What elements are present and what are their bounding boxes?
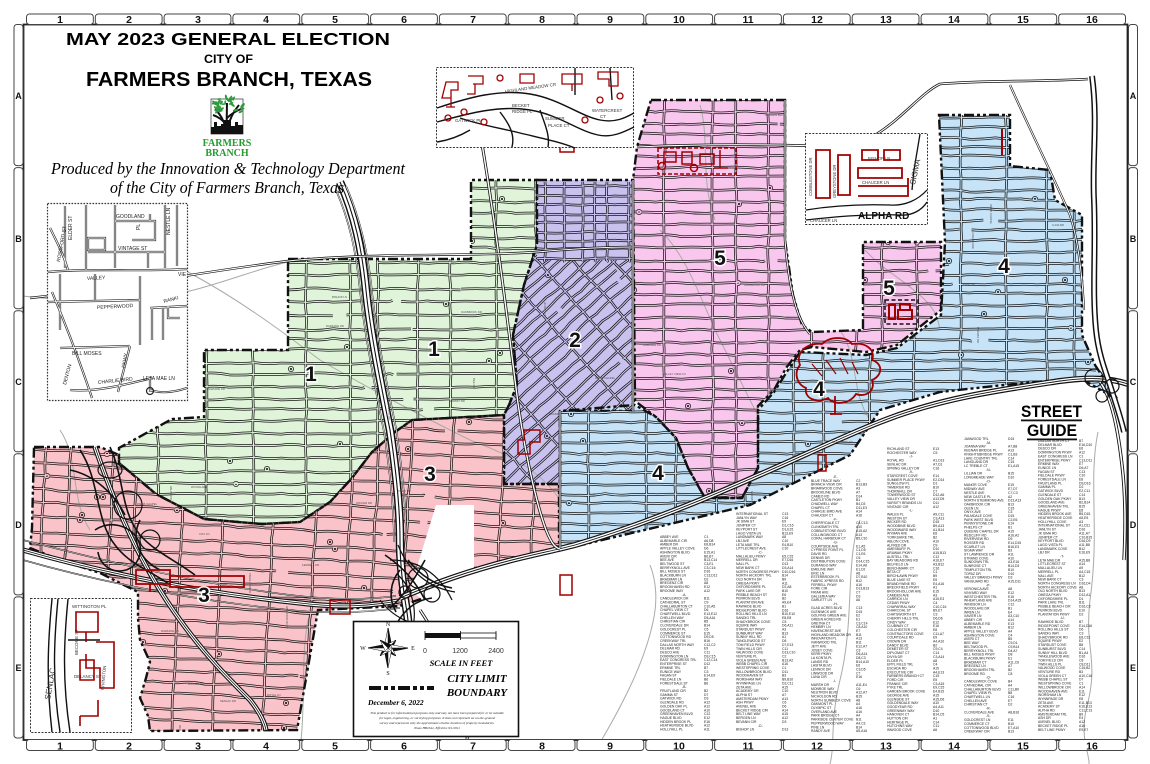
svg-text:COX LN: COX LN [199, 532, 209, 536]
svg-text:12: 12 [811, 741, 823, 753]
svg-text:S: S [386, 671, 389, 677]
svg-text:VALLEY: VALLEY [87, 275, 106, 282]
svg-text:SCALE IN FEET: SCALE IN FEET [430, 658, 494, 668]
svg-text:SENLAC DR: SENLAC DR [220, 699, 236, 703]
svg-text:RAWHIDE DR: RAWHIDE DR [207, 387, 225, 391]
svg-text:16: 16 [1086, 14, 1098, 26]
svg-text:A15,D11: A15,D11 [1008, 580, 1021, 584]
svg-text:8: 8 [539, 741, 545, 753]
svg-text:5: 5 [714, 247, 726, 270]
svg-text:-N-: -N- [986, 468, 991, 472]
svg-text:C8: C8 [1008, 672, 1012, 676]
svg-text:JOSEY LN: JOSEY LN [543, 302, 547, 315]
svg-text:DELANCY ST: DELANCY ST [74, 674, 102, 679]
svg-text:SENLAC DR: SENLAC DR [64, 541, 68, 557]
svg-text:A12: A12 [704, 589, 710, 593]
svg-text:15: 15 [1017, 14, 1029, 26]
svg-text:10: 10 [673, 14, 685, 26]
svg-text:8: 8 [539, 14, 545, 26]
svg-text:RANDY AVE: RANDY AVE [811, 729, 831, 733]
svg-text:2: 2 [126, 741, 132, 753]
svg-text:A6: A6 [856, 598, 860, 602]
svg-text:CORAL HARBOUR CT: CORAL HARBOUR CT [811, 537, 846, 541]
svg-text:MAY 2023 GENERAL ELECTION: MAY 2023 GENERAL ELECTION [66, 29, 390, 49]
svg-text:MIDWAY RD: MIDWAY RD [449, 399, 465, 403]
svg-text:This product is for informatio: This product is for informational purpos… [370, 711, 504, 715]
svg-text:BISHOP LN: BISHOP LN [868, 156, 890, 161]
svg-text:Produced by the Innovation & T: Produced by the Innovation & Technology … [50, 159, 406, 178]
svg-text:D2: D2 [1008, 703, 1012, 707]
svg-text:CT: CT [600, 114, 606, 119]
svg-text:D10: D10 [1008, 476, 1014, 480]
svg-text:-M-: -M- [986, 441, 991, 445]
svg-text:W: W [360, 646, 366, 652]
svg-text:CITY LIMIT: CITY LIMIT [447, 673, 507, 685]
svg-text:SPRING VALLEY DR: SPRING VALLEY DR [887, 466, 920, 470]
svg-text:E9,E7: E9,E7 [1079, 728, 1088, 732]
svg-text:B5,C10: B5,C10 [856, 537, 867, 541]
svg-text:BROOME RD: BROOME RD [964, 672, 985, 676]
svg-text:FARMERS BRANCH, TEXAS: FARMERS BRANCH, TEXAS [86, 69, 372, 91]
svg-text:GOODLAND: GOODLAND [116, 214, 145, 220]
svg-text:GUIDE: GUIDE [1027, 421, 1077, 440]
svg-text:JOSEY LN: JOSEY LN [397, 489, 410, 493]
svg-text:C: C [1130, 377, 1137, 387]
svg-text:-T-: -T- [1060, 555, 1064, 559]
svg-text:1: 1 [305, 363, 317, 386]
svg-text:GARDEN BROOK: GARDEN BROOK [765, 113, 788, 117]
svg-text:BRANCH: BRANCH [205, 148, 249, 159]
svg-text:4: 4 [813, 378, 825, 401]
svg-text:WITTINGTON PL: WITTINGTON PL [72, 604, 107, 609]
svg-text:E1,A15: E1,A15 [1008, 464, 1019, 468]
svg-text:INWOOD COVE: INWOOD COVE [887, 728, 913, 732]
svg-text:D13: D13 [782, 728, 788, 732]
svg-text:WEBB CHAPEL: WEBB CHAPEL [137, 502, 158, 506]
svg-text:E: E [411, 646, 415, 652]
svg-text:D: D [1130, 520, 1137, 530]
svg-text:12: 12 [811, 14, 823, 26]
svg-text:OAKBROOK DR: OAKBROOK DR [744, 283, 765, 287]
svg-text:BELT LINE PKWY: BELT LINE PKWY [1038, 728, 1066, 732]
svg-text:7: 7 [470, 741, 476, 753]
svg-text:WOODLAKE: WOODLAKE [191, 485, 207, 489]
svg-text:4: 4 [263, 741, 269, 753]
svg-text:STREET: STREET [1021, 402, 1083, 421]
svg-text:A6: A6 [933, 728, 937, 732]
svg-text:BEVANN CIR: BEVANN CIR [736, 720, 757, 724]
svg-text:BOUNDARY: BOUNDARY [446, 687, 509, 699]
svg-text:WEBB CHAPEL: WEBB CHAPEL [595, 376, 616, 380]
svg-text:B6: B6 [704, 681, 708, 685]
svg-text:C10: C10 [782, 547, 788, 551]
svg-text:A: A [15, 91, 22, 101]
svg-text:VIE: VIE [178, 272, 187, 278]
svg-text:LUNA CIR: LUNA CIR [811, 675, 827, 679]
svg-text:OAKBROOK DR: OAKBROOK DR [461, 310, 482, 314]
svg-text:E16: E16 [856, 675, 862, 679]
svg-text:6: 6 [401, 14, 407, 26]
svg-text:9: 9 [607, 14, 613, 26]
svg-text:RAWHIDE DR: RAWHIDE DR [161, 629, 179, 633]
svg-text:1200: 1200 [452, 648, 468, 655]
svg-text:-J-: -J- [909, 455, 913, 459]
svg-text:VALLEY VIEW LN: VALLEY VIEW LN [663, 372, 686, 376]
svg-text:ALPHA RD: ALPHA RD [858, 211, 909, 222]
svg-text:PL: PL [136, 224, 142, 230]
svg-text:MIDWAY RD: MIDWAY RD [976, 327, 980, 343]
svg-text:December 6, 2022: December 6, 2022 [367, 698, 424, 707]
svg-text:BECKET: BECKET [512, 103, 530, 108]
svg-text:D2: D2 [1079, 612, 1083, 616]
svg-text:6: 6 [401, 741, 407, 753]
svg-text:N: N [386, 622, 391, 628]
svg-text:14: 14 [948, 741, 960, 753]
svg-text:D15: D15 [1008, 437, 1014, 441]
svg-text:A12: A12 [933, 505, 939, 509]
svg-text:PLANTATION PKWY: PLANTATION PKWY [1038, 612, 1070, 616]
svg-text:5: 5 [332, 14, 338, 26]
svg-text:10: 10 [673, 741, 685, 753]
svg-text:3: 3 [195, 741, 201, 753]
svg-text:LETA MAE LN: LETA MAE LN [143, 376, 175, 382]
svg-text:VINTAGE ST: VINTAGE ST [118, 246, 147, 252]
svg-text:1: 1 [57, 14, 63, 26]
svg-text:ROYAL LN: ROYAL LN [267, 693, 281, 697]
svg-text:A5,A16: A5,A16 [856, 729, 867, 733]
svg-text:CITY OF: CITY OF [204, 54, 253, 66]
svg-text:E: E [1130, 663, 1136, 673]
svg-text:2400: 2400 [488, 648, 504, 655]
svg-text:11: 11 [742, 14, 753, 26]
svg-text:4: 4 [263, 14, 269, 26]
svg-text:HOLLYHILL PL: HOLLYHILL PL [660, 728, 683, 732]
svg-text:4: 4 [998, 255, 1010, 278]
svg-text:OAKBROOK DR: OAKBROOK DR [832, 440, 853, 444]
svg-text:PLACE CT: PLACE CT [548, 123, 570, 128]
svg-text:2: 2 [126, 14, 132, 26]
svg-text:C16: C16 [933, 466, 939, 470]
svg-text:OLD NORTH RD: OLD NORTH RD [387, 399, 391, 420]
svg-text:A16: A16 [856, 514, 862, 518]
svg-text:CREEKWAY CIR: CREEKWAY CIR [964, 730, 990, 734]
svg-text:TANGLEWOOD: TANGLEWOOD [248, 573, 252, 593]
svg-text:FYKE RD: FYKE RD [963, 283, 975, 287]
svg-text:11: 11 [742, 741, 753, 753]
svg-text:9: 9 [607, 741, 613, 753]
svg-text:GATWICK PL: GATWICK PL [455, 118, 482, 123]
svg-text:WEBB CHAPEL: WEBB CHAPEL [989, 204, 993, 225]
svg-text:1: 1 [428, 338, 440, 361]
svg-text:A: A [1130, 91, 1137, 101]
svg-text:D: D [15, 520, 22, 530]
svg-text:WICKER DR: WICKER DR [356, 501, 372, 505]
svg-text:RAWHIDE DR: RAWHIDE DR [643, 343, 661, 347]
svg-text:CHAUCER LN: CHAUCER LN [862, 180, 889, 185]
svg-text:D3: D3 [782, 720, 786, 724]
svg-text:A11: A11 [704, 728, 710, 732]
svg-text:BILL MOSES: BILL MOSES [72, 351, 102, 357]
svg-text:VINTAGE CIR: VINTAGE CIR [887, 505, 909, 509]
svg-text:RAWHIDE DR: RAWHIDE DR [326, 324, 344, 328]
svg-text:BROOME WAY: BROOME WAY [660, 589, 684, 593]
svg-text:14: 14 [948, 14, 960, 26]
svg-text:BISHOP LN: BISHOP LN [332, 295, 347, 299]
svg-text:survey and represents only: survey and represents only the approxima… [380, 721, 495, 725]
svg-text:4: 4 [652, 462, 664, 485]
svg-text:B: B [15, 234, 22, 244]
svg-text:C5: C5 [933, 451, 937, 455]
svg-text:0: 0 [423, 648, 427, 655]
svg-text:ELDER ST: ELDER ST [68, 216, 74, 240]
svg-text:1: 1 [57, 741, 63, 753]
svg-text:LBJ DR: LBJ DR [1038, 551, 1050, 555]
svg-text:C: C [15, 377, 22, 387]
svg-text:GREYSTONE DR: GREYSTONE DR [832, 165, 837, 198]
svg-text:GARLETT LN: GARLETT LN [811, 598, 832, 602]
svg-text:3: 3 [198, 584, 210, 607]
svg-text:7: 7 [470, 14, 476, 26]
svg-text:5: 5 [332, 741, 338, 753]
svg-text:CHAUCER CT: CHAUCER CT [811, 514, 833, 518]
svg-text:VALWOOD PKWY: VALWOOD PKWY [285, 606, 289, 629]
svg-text:LONGMEADE: LONGMEADE [971, 231, 975, 249]
svg-text:BISHOP LN: BISHOP LN [736, 728, 755, 732]
svg-text:B: B [1130, 234, 1137, 244]
svg-text:BEE ST: BEE ST [472, 378, 476, 388]
svg-text:13: 13 [880, 14, 892, 26]
svg-text:LUNA RD: LUNA RD [1052, 223, 1064, 227]
svg-text:-D-: -D- [758, 724, 763, 728]
svg-text:CHRISTIAN CT: CHRISTIAN CT [964, 703, 988, 707]
svg-text:-I-: -I- [833, 679, 836, 683]
svg-text:B13: B13 [1008, 730, 1014, 734]
svg-text:RIDGE PL: RIDGE PL [512, 109, 533, 114]
svg-text:3: 3 [424, 463, 436, 486]
svg-text:2: 2 [569, 329, 581, 352]
svg-text:E: E [15, 663, 21, 673]
svg-text:13: 13 [880, 741, 892, 753]
svg-text:CHAUCER LN: CHAUCER LN [810, 218, 837, 223]
svg-text:FERRELL DR: FERRELL DR [302, 563, 319, 567]
svg-text:-L-: -L- [909, 509, 913, 513]
svg-text:SUMMER: SUMMER [545, 116, 565, 121]
svg-text:COBBLESTONE DR: COBBLESTONE DR [808, 157, 813, 196]
svg-text:E16,E9: E16,E9 [1079, 551, 1090, 555]
svg-text:3: 3 [195, 14, 201, 26]
svg-text:16: 16 [1086, 741, 1098, 753]
svg-text:WICKER DR: WICKER DR [188, 682, 204, 686]
svg-text:NESTLE LN: NESTLE LN [166, 207, 172, 235]
svg-text:5: 5 [883, 277, 895, 300]
svg-text:BECOME ST: BECOME ST [74, 629, 79, 655]
svg-text:of the City of Farmers Branch,: of the City of Farmers Branch, Texas [110, 178, 344, 197]
svg-text:LC TREBLE CT: LC TREBLE CT [964, 464, 988, 468]
svg-text:15: 15 [1017, 741, 1029, 753]
svg-text:A8,B16: A8,B16 [1008, 710, 1019, 714]
svg-text:WATERCREST: WATERCREST [592, 108, 623, 113]
